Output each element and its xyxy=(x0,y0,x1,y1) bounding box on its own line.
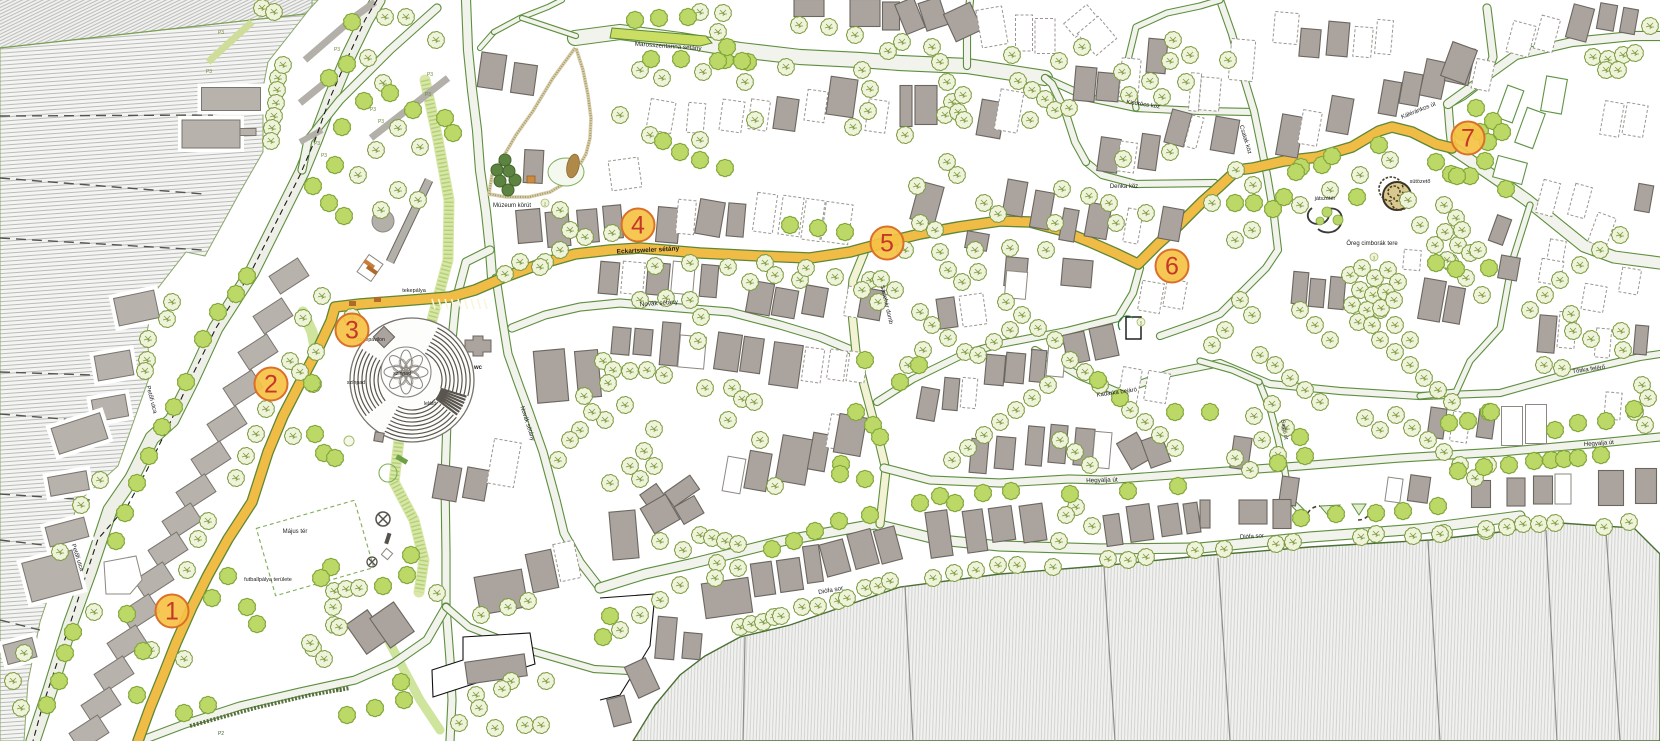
svg-text:színpad: színpad xyxy=(347,380,365,386)
svg-text:P3: P3 xyxy=(427,72,433,78)
svg-text:játszótér: játszótér xyxy=(1314,196,1336,202)
svg-text:4: 4 xyxy=(631,212,645,240)
svg-text:6: 6 xyxy=(1165,253,1179,281)
svg-text:Denka köz: Denka köz xyxy=(1110,184,1138,190)
svg-text:P3: P3 xyxy=(378,119,384,125)
svg-text:P3: P3 xyxy=(314,141,320,147)
svg-text:P3: P3 xyxy=(321,153,327,159)
svg-text:wc: wc xyxy=(473,365,483,371)
svg-text:2: 2 xyxy=(264,371,278,399)
svg-text:futballpálya területe: futballpálya területe xyxy=(244,577,292,583)
svg-text:P3: P3 xyxy=(218,30,224,36)
svg-text:7: 7 xyxy=(1461,125,1475,153)
svg-text:Diófa sor: Diófa sor xyxy=(1240,533,1264,540)
svg-text:P2: P2 xyxy=(336,688,342,694)
svg-text:5: 5 xyxy=(880,230,894,258)
svg-text:Május tér: Május tér xyxy=(283,529,308,535)
svg-text:P2: P2 xyxy=(218,731,224,737)
svg-text:sütözető: sütözető xyxy=(1410,179,1431,185)
svg-text:P3: P3 xyxy=(425,92,431,98)
svg-text:1: 1 xyxy=(165,598,179,626)
svg-text:Múzeum körút: Múzeum körút xyxy=(493,203,531,209)
svg-text:P3: P3 xyxy=(370,107,376,113)
svg-text:P3: P3 xyxy=(206,69,212,75)
svg-text:P3: P3 xyxy=(334,47,340,53)
svg-text:színpad: színpad xyxy=(393,371,411,377)
svg-text:Hegyalja út: Hegyalja út xyxy=(1086,476,1118,484)
svg-text:3: 3 xyxy=(345,317,359,345)
svg-text:lelátó: lelátó xyxy=(424,401,437,407)
svg-text:tekepálya: tekepálya xyxy=(402,288,426,294)
svg-text:Öreg cimborák tere: Öreg cimborák tere xyxy=(1346,240,1398,247)
